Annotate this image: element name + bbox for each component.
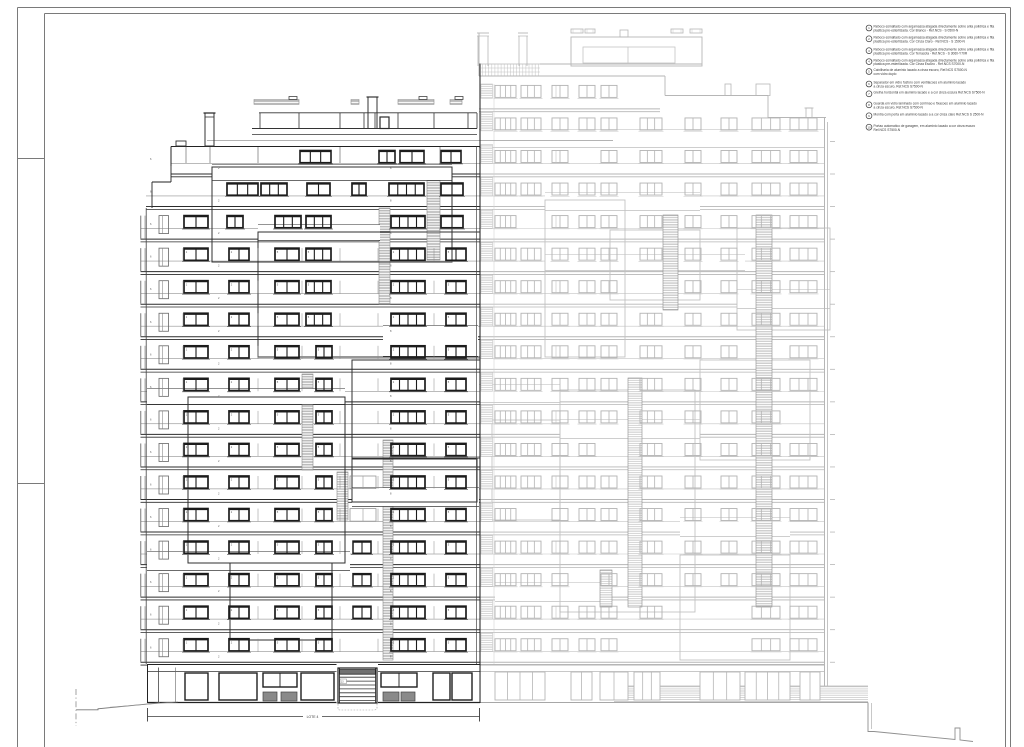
svg-text:Montra com porta em aluminio l: Montra com porta em aluminio lacado a a …: [874, 113, 985, 117]
svg-text:plastica pre-esterilizada. Cor: plastica pre-esterilizada. Cor Cinza Esc…: [874, 62, 966, 66]
svg-text:Grelha horizontal em aluminio: Grelha horizontal em aluminio lacado e a…: [874, 91, 986, 95]
svg-text:LOTE 4: LOTE 4: [307, 715, 319, 719]
svg-text:plastica pre-esterilizada. Cor: plastica pre-esterilizada. Cor Cinza Cla…: [874, 39, 966, 43]
svg-text:10: 10: [867, 125, 871, 129]
svg-text:Ref.NCS S7500-N: Ref.NCS S7500-N: [874, 128, 901, 132]
svg-text:com vidro duplo: com vidro duplo: [874, 72, 897, 76]
svg-text:a cinza escuro, Ref.NCS S7500-: a cinza escuro, Ref.NCS S7500-N: [874, 105, 924, 109]
svg-text:plastica pre-esterilizada. Cor: plastica pre-esterilizada. Cor Terracota…: [874, 51, 968, 55]
svg-text:plastica pre-esterilizada. Cor: plastica pre-esterilizada. Cor Branco - …: [874, 29, 959, 33]
svg-text:a cinza escuro, Ref.NCS S7500-: a cinza escuro, Ref.NCS S7500-N: [874, 85, 924, 89]
